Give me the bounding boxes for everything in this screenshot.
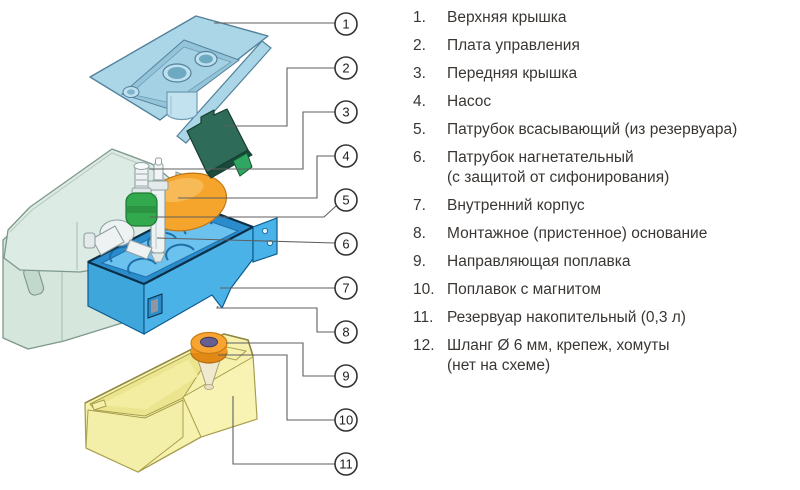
legend-item-12: 12. Шланг Ø 6 мм, крепеж, хомуты (нет на… bbox=[413, 336, 795, 376]
legend-number: 8. bbox=[413, 224, 447, 244]
legend-item-8: 8. Монтажное (пристенное) основание bbox=[413, 224, 795, 244]
callout-2: 2 bbox=[335, 57, 357, 79]
legend-item-10: 10. Поплавок с магнитом bbox=[413, 280, 795, 300]
legend-number: 6. bbox=[413, 148, 447, 188]
leader-line-8 bbox=[217, 306, 335, 332]
float-magnet-hole bbox=[201, 337, 218, 347]
callout-number: 7 bbox=[342, 281, 349, 296]
callout-number: 1 bbox=[342, 17, 349, 32]
legend-label: Монтажное (пристенное) основание bbox=[447, 224, 707, 244]
callout-3: 3 bbox=[335, 101, 357, 123]
callout-number: 3 bbox=[342, 105, 349, 120]
legend-item-6: 6. Патрубок нагнетательный (с защитой от… bbox=[413, 148, 795, 188]
top-cover-part bbox=[90, 16, 271, 143]
callout-6: 6 bbox=[335, 233, 357, 255]
callout-number: 11 bbox=[339, 457, 353, 472]
legend-item-2: 2. Плата управления bbox=[413, 36, 795, 56]
legend-item-4: 4. Насос bbox=[413, 92, 795, 112]
callout-11: 11 bbox=[335, 453, 357, 475]
legend-number: 2. bbox=[413, 36, 447, 56]
legend-number: 12. bbox=[413, 336, 447, 376]
callout-number: 4 bbox=[342, 149, 349, 164]
legend-item-3: 3. Передняя крышка bbox=[413, 64, 795, 84]
legend-label: Насос bbox=[447, 92, 491, 112]
float-part bbox=[191, 333, 227, 364]
legend-item-1: 1. Верхняя крышка bbox=[413, 8, 795, 28]
callout-8: 8 bbox=[335, 321, 357, 343]
legend-number: 9. bbox=[413, 252, 447, 272]
legend-number: 7. bbox=[413, 196, 447, 216]
callout-4: 4 bbox=[335, 145, 357, 167]
wall-hook-flap bbox=[253, 218, 277, 262]
legend-number: 10. bbox=[413, 280, 447, 300]
legend-number: 1. bbox=[413, 8, 447, 28]
page: 1 2 3 4 5 6 7 bbox=[0, 0, 800, 490]
legend-label: Передняя крышка bbox=[447, 64, 577, 84]
legend-item-7: 7. Внутренний корпус bbox=[413, 196, 795, 216]
callout-7: 7 bbox=[335, 277, 357, 299]
clip-detail bbox=[151, 299, 158, 314]
callout-number: 5 bbox=[342, 193, 349, 208]
callout-5: 5 bbox=[335, 189, 357, 211]
callout-number: 6 bbox=[342, 237, 349, 252]
legend-label: Плата управления bbox=[447, 36, 580, 56]
legend-label: Патрубок нагнетательный (с защитой от си… bbox=[447, 148, 669, 188]
legend-label: Направляющая поплавка bbox=[447, 252, 631, 272]
callout-number: 10 bbox=[339, 413, 353, 428]
callout-10: 10 bbox=[335, 409, 357, 431]
callout-number: 8 bbox=[342, 325, 349, 340]
callout-1: 1 bbox=[335, 13, 357, 35]
callouts: 1 2 3 4 5 6 7 bbox=[335, 13, 357, 475]
legend-item-9: 9. Направляющая поплавка bbox=[413, 252, 795, 272]
legend-item-11: 11. Резервуар накопительный (0,3 л) bbox=[413, 308, 795, 328]
legend-label: Внутренний корпус bbox=[447, 196, 585, 216]
legend-number: 11. bbox=[413, 308, 447, 328]
legend-label: Верхняя крышка bbox=[447, 8, 567, 28]
callout-number: 2 bbox=[342, 61, 349, 76]
legend-label: Поплавок с магнитом bbox=[447, 280, 601, 300]
legend-item-5: 5. Патрубок всасывающий (из резервуара) bbox=[413, 120, 795, 140]
legend-number: 5. bbox=[413, 120, 447, 140]
legend-number: 3. bbox=[413, 64, 447, 84]
legend-label: Резервуар накопительный (0,3 л) bbox=[447, 308, 686, 328]
callout-9: 9 bbox=[335, 365, 357, 387]
exploded-view-diagram: 1 2 3 4 5 6 7 bbox=[0, 0, 400, 490]
legend-label: Патрубок всасывающий (из резервуара) bbox=[447, 120, 737, 140]
legend-number: 4. bbox=[413, 92, 447, 112]
parts-legend: 1. Верхняя крышка 2. Плата управления 3.… bbox=[413, 8, 795, 384]
legend-label: Шланг Ø 6 мм, крепеж, хомуты (нет на схе… bbox=[447, 336, 669, 376]
callout-number: 9 bbox=[342, 369, 349, 384]
